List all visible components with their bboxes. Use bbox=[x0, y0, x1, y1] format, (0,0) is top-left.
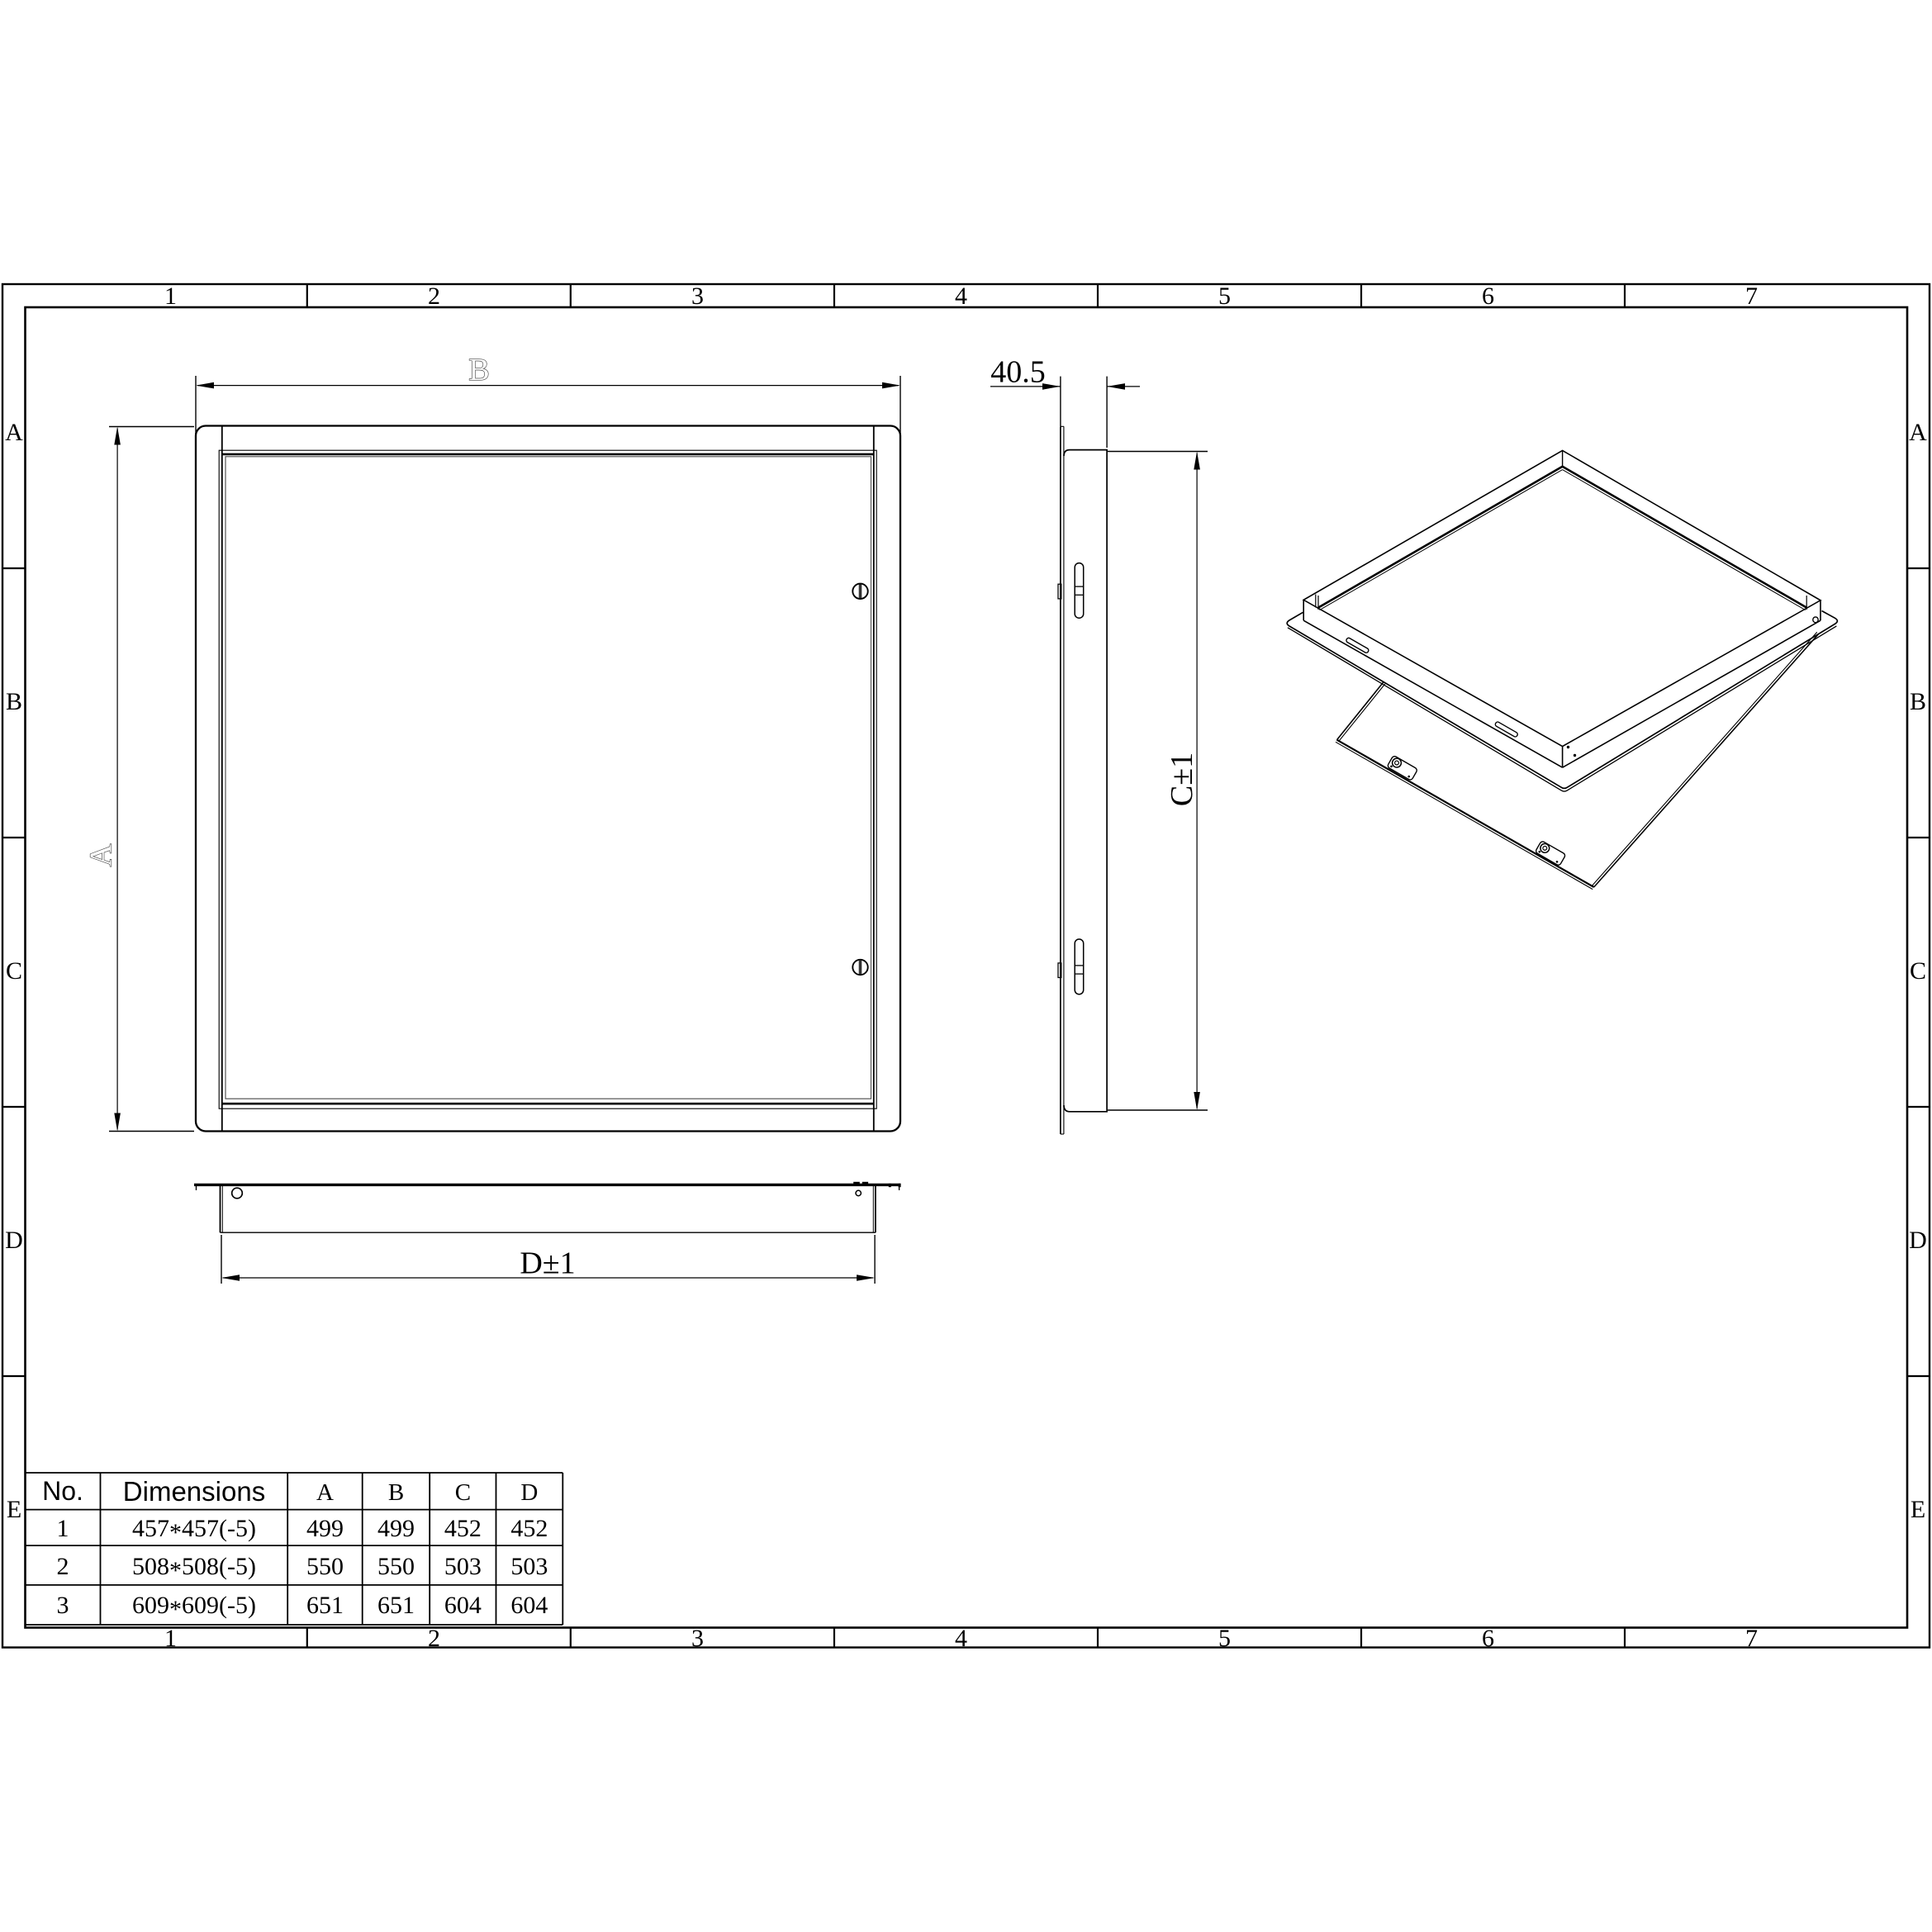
svg-text:C: C bbox=[455, 1479, 471, 1506]
svg-text:457*457(-5): 457*457(-5) bbox=[132, 1515, 256, 1546]
svg-text:C±1: C±1 bbox=[1165, 752, 1199, 806]
svg-text:B: B bbox=[468, 353, 489, 387]
svg-text:550: 550 bbox=[377, 1553, 415, 1580]
svg-text:5: 5 bbox=[1218, 1625, 1231, 1652]
svg-text:6: 6 bbox=[1482, 282, 1494, 310]
svg-text:499: 499 bbox=[377, 1515, 415, 1542]
svg-text:604: 604 bbox=[510, 1592, 548, 1619]
svg-text:A: A bbox=[84, 843, 119, 866]
svg-text:7: 7 bbox=[1745, 282, 1758, 310]
svg-text:A: A bbox=[1909, 419, 1927, 446]
svg-text:40.5: 40.5 bbox=[990, 355, 1046, 390]
svg-text:E: E bbox=[1911, 1496, 1925, 1523]
svg-text:B: B bbox=[1910, 688, 1926, 715]
svg-text:1: 1 bbox=[57, 1515, 69, 1542]
svg-text:3: 3 bbox=[691, 282, 704, 310]
svg-text:1: 1 bbox=[164, 282, 177, 310]
svg-text:503: 503 bbox=[444, 1553, 482, 1580]
svg-text:D±1: D±1 bbox=[520, 1246, 575, 1281]
svg-text:3: 3 bbox=[57, 1592, 69, 1619]
svg-text:1: 1 bbox=[164, 1625, 177, 1652]
svg-text:503: 503 bbox=[510, 1553, 548, 1580]
svg-text:550: 550 bbox=[306, 1553, 344, 1580]
svg-text:4: 4 bbox=[955, 282, 967, 310]
svg-text:604: 604 bbox=[444, 1592, 482, 1619]
svg-text:6: 6 bbox=[1482, 1625, 1494, 1652]
svg-text:508*508(-5): 508*508(-5) bbox=[132, 1553, 256, 1584]
svg-text:D: D bbox=[1909, 1227, 1927, 1254]
svg-text:D: D bbox=[520, 1479, 538, 1506]
svg-text:452: 452 bbox=[444, 1515, 482, 1542]
svg-text:E: E bbox=[7, 1496, 21, 1523]
svg-text:A: A bbox=[316, 1479, 334, 1506]
svg-text:C: C bbox=[1910, 957, 1926, 985]
svg-text:4: 4 bbox=[955, 1625, 967, 1652]
svg-text:2: 2 bbox=[428, 1625, 440, 1652]
svg-text:2: 2 bbox=[57, 1553, 69, 1580]
svg-text:D: D bbox=[5, 1227, 23, 1254]
svg-text:C: C bbox=[6, 957, 22, 985]
svg-text:452: 452 bbox=[510, 1515, 548, 1542]
svg-text:5: 5 bbox=[1218, 282, 1231, 310]
svg-text:No.: No. bbox=[42, 1476, 83, 1506]
svg-text:651: 651 bbox=[377, 1592, 415, 1619]
svg-text:B: B bbox=[6, 688, 22, 715]
svg-text:499: 499 bbox=[306, 1515, 344, 1542]
svg-text:A: A bbox=[5, 419, 23, 446]
svg-text:609*609(-5): 609*609(-5) bbox=[132, 1592, 256, 1623]
svg-text:Dimensions: Dimensions bbox=[123, 1476, 265, 1507]
svg-text:7: 7 bbox=[1745, 1625, 1758, 1652]
svg-text:651: 651 bbox=[306, 1592, 344, 1619]
svg-text:3: 3 bbox=[691, 1625, 704, 1652]
svg-text:2: 2 bbox=[428, 282, 440, 310]
svg-text:B: B bbox=[388, 1479, 404, 1506]
